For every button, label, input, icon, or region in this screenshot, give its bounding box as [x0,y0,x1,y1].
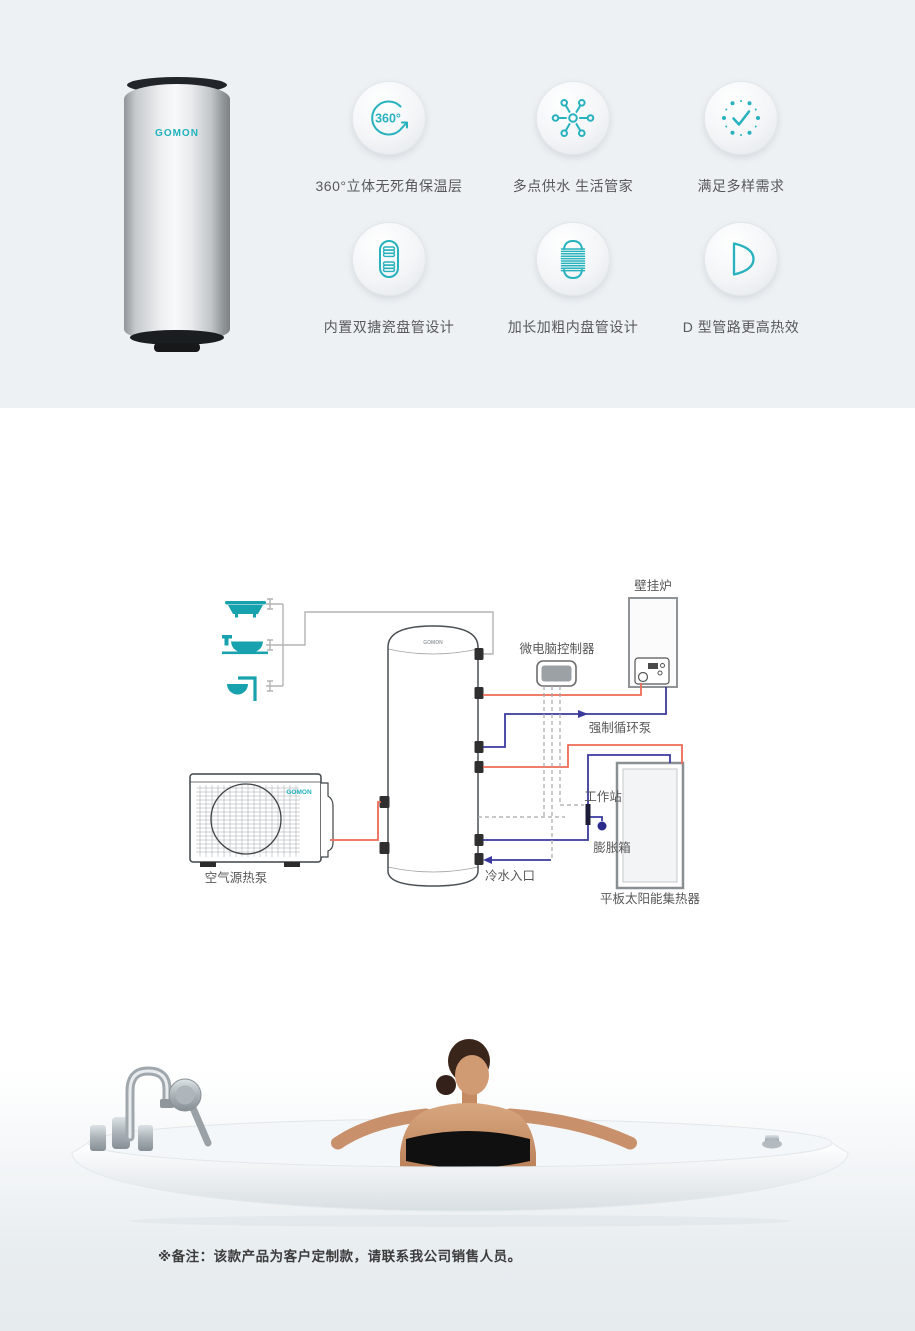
storage-tank: GOMON [380,626,484,886]
clock-check-icon [704,81,778,155]
tank-foot [154,343,200,352]
feature-label: D 型管路更高热效 [683,317,800,337]
multi-point-supply-icon [536,81,610,155]
face [455,1055,489,1095]
feature-label: 多点供水 生活管家 [513,176,633,196]
feature-label: 内置双搪瓷盘管设计 [324,317,455,337]
label-circulation-pump: 强制循环泵 [589,721,652,735]
label-controller: 微电脑控制器 [519,642,595,656]
hair-bun [436,1075,456,1095]
label-expansion-tank: 膨胀箱 [593,840,631,855]
feature-insulation: 360° 360°立体无死角保温层 [289,81,489,196]
heat-pump: GOMON [190,774,333,867]
feature-label: 360°立体无死角保温层 [316,176,463,196]
expansion-tank-dot [598,822,607,831]
heat-pump-logo-text: GOMON [286,789,312,796]
product-page: GOMON 360° 360°立体无死角保温层 [0,0,915,1331]
badge-360: 360° [375,112,401,126]
long-thick-coil-icon [536,222,610,296]
footer-note: ※备注：该款产品为客户定制款，请联系我公司销售人员。 [158,1245,522,1265]
double-enamel-coil-icon [352,222,426,296]
bathtub-icon [225,601,266,618]
feature-label: 加长加粗内盘管设计 [508,317,639,337]
tub-shadow [130,1215,790,1227]
controller [537,661,576,686]
solar-collector [617,763,683,888]
label-heat-pump: 空气源热泵 [205,870,268,885]
feature-double-coil: 内置双搪瓷盘管设计 [289,222,489,337]
black-top [406,1131,530,1168]
rotate-360-icon: 360° [352,81,426,155]
feature-d-pipe: D 型管路更高热效 [641,222,841,337]
sink-icon [222,635,268,654]
brand-logo: GOMON [124,128,230,139]
system-diagram: GOMON 壁挂炉 微电脑控制器 [180,555,710,920]
tank-body: GOMON [124,84,230,338]
tank-logo-text: GOMON [423,640,443,646]
wall-boiler [629,598,677,687]
sensor-lines [478,686,584,858]
product-image-water-tank: GOMON [124,77,230,354]
label-workstation: 工作站 [584,790,622,804]
label-cold-water-inlet: 冷水入口 [485,869,535,883]
bathtub-photo [60,1025,860,1233]
label-solar-collector: 平板太阳能集热器 [600,891,701,906]
feature-label: 满足多样需求 [698,176,785,196]
workstation-valve [586,804,591,825]
shower-icon [227,678,255,701]
feature-various-needs: 满足多样需求 [641,81,841,196]
d-type-pipe-icon [704,222,778,296]
features-section: GOMON 360° 360°立体无死角保温层 [0,0,915,408]
label-wall-boiler: 壁挂炉 [634,578,672,593]
